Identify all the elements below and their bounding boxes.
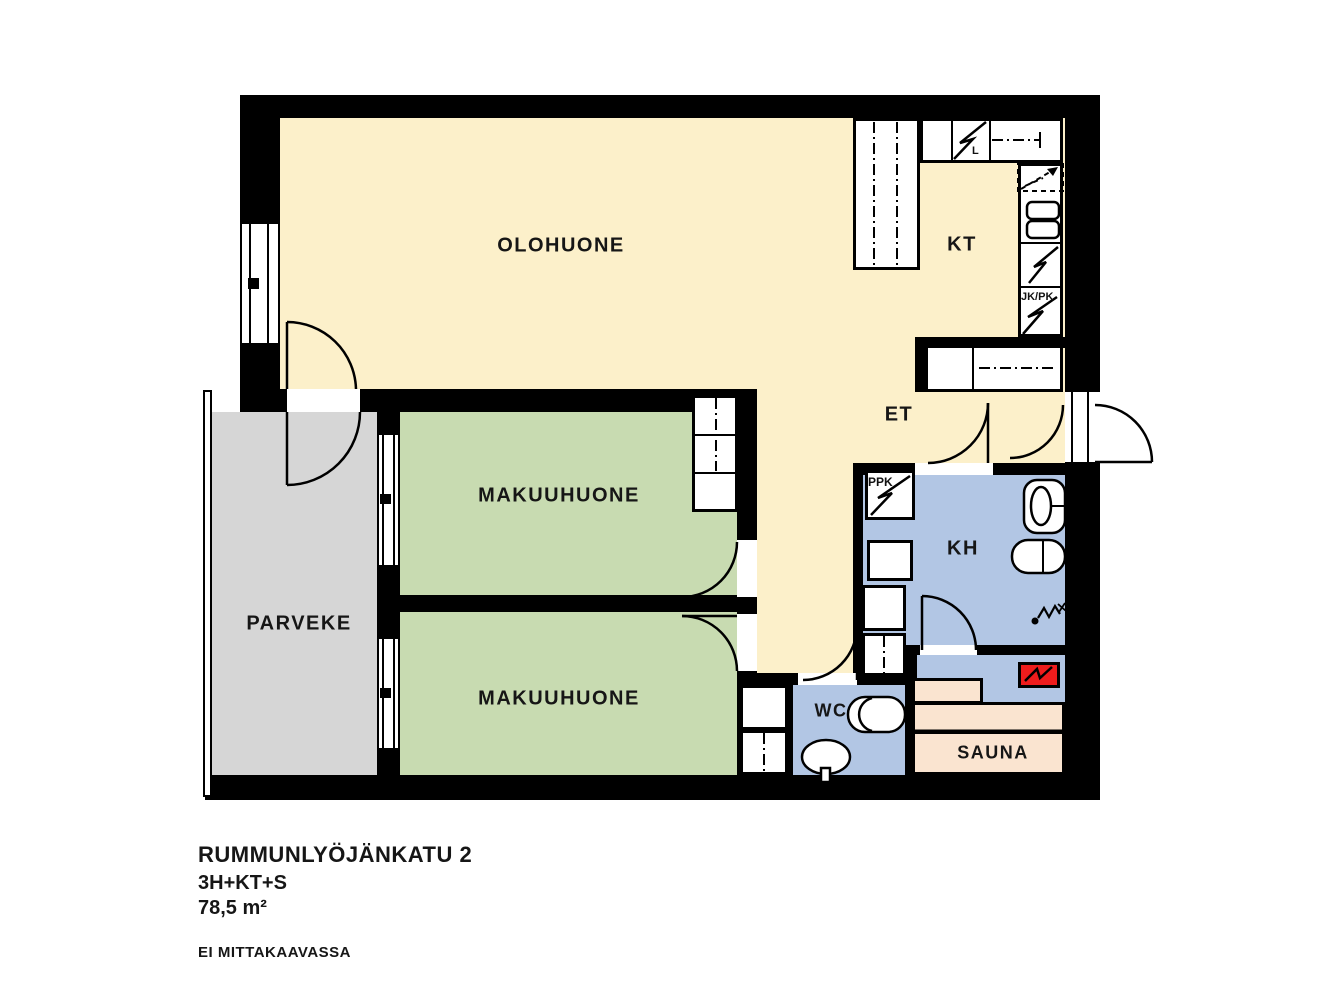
wall-bottom — [205, 775, 1100, 800]
kitchen-counter-top — [920, 118, 1063, 163]
entry-door-opening — [1065, 392, 1100, 462]
label-wc: WC — [815, 701, 848, 722]
living-room-window — [240, 222, 280, 345]
hall-closet-lower — [862, 633, 906, 676]
sauna-bench-step — [912, 678, 983, 704]
label-parveke: PARVEKE — [246, 613, 351, 636]
sauna-door-opening — [920, 645, 977, 655]
footer-info: RUMMUNLYÖJÄNKATU 2 3H+KT+S 78,5 m² EI MI… — [198, 842, 472, 961]
sauna-bench-mid — [912, 702, 1065, 733]
label-makuuhuone2: MAKUUHUONE — [478, 688, 640, 711]
label-sauna: SAUNA — [957, 743, 1029, 764]
footer-layout-code: 3H+KT+S — [198, 872, 472, 895]
wall-between-bedrooms — [400, 595, 737, 612]
label-kt: KT — [947, 234, 977, 257]
footer-area: 78,5 m² — [198, 897, 472, 920]
bathroom-door-opening — [915, 463, 993, 475]
bedroom2-window — [377, 637, 400, 750]
bathroom-cabinet-1 — [867, 540, 913, 581]
label-et: ET — [885, 404, 914, 427]
bedroom1-closet — [692, 395, 738, 512]
wc-door-opening — [798, 673, 857, 685]
bathroom-cabinet-2 — [862, 585, 906, 631]
label-olohuone: OLOHUONE — [497, 235, 625, 258]
wall-left-upper — [240, 95, 280, 225]
floorplan-canvas: OLOHUONE KT ET MAKUUHUONE MAKUUHUONE PAR… — [0, 0, 1344, 1008]
label-ppk: PPK — [868, 475, 893, 489]
balcony-railing — [203, 390, 212, 797]
footer-note: EI MITTAKAAVASSA — [198, 944, 472, 961]
bedroom2-door-opening — [737, 614, 757, 671]
bedroom1-window — [377, 433, 400, 567]
room-wc-floor — [792, 683, 905, 775]
entry-door-arc-outside — [1095, 405, 1152, 462]
bedroom1-door-opening — [737, 540, 757, 597]
kitchen-tall-cabinet — [853, 118, 920, 270]
label-makuuhuone1: MAKUUHUONE — [478, 485, 640, 508]
sauna-stove — [1018, 662, 1060, 688]
entry-closet — [925, 345, 1063, 392]
label-liesi: L — [972, 145, 979, 157]
kitchen-counter-right — [1018, 163, 1063, 337]
hall-closet-a — [740, 685, 788, 730]
balcony-door-opening — [287, 389, 360, 412]
hall-closet-b — [740, 730, 788, 775]
footer-address: RUMMUNLYÖJÄNKATU 2 — [198, 842, 472, 868]
room-balcony-floor — [212, 412, 377, 775]
label-kh: KH — [947, 538, 979, 561]
wall-top — [240, 95, 1100, 118]
label-jkpk: JK/PK — [1021, 291, 1053, 303]
